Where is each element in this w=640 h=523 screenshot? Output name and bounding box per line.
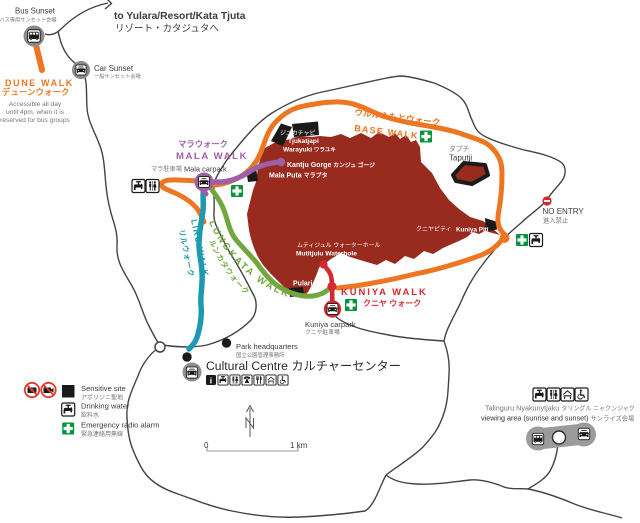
svg-text:Emergency radio alarm: Emergency radio alarm bbox=[81, 421, 160, 430]
svg-text:Warayuki ワラユキ: Warayuki ワラユキ bbox=[283, 147, 336, 154]
svg-text:Sensitive site: Sensitive site bbox=[81, 384, 126, 393]
svg-text:飲料水: 飲料水 bbox=[81, 411, 99, 419]
svg-text:デューンウォーク: デューンウォーク bbox=[2, 87, 70, 97]
svg-text:ムティジュル ウォーターホール: ムティジュル ウォーターホール bbox=[297, 241, 380, 249]
svg-text:Mutitjulu Waterhole: Mutitjulu Waterhole bbox=[296, 251, 357, 258]
svg-text:Kantju Gorge カンジュ ゴージ: Kantju Gorge カンジュ ゴージ bbox=[287, 161, 375, 169]
svg-text:Mala Puta マラプタ: Mala Puta マラプタ bbox=[269, 172, 328, 180]
svg-text:i: i bbox=[210, 375, 212, 385]
svg-text:Kuniya Piti: Kuniya Piti bbox=[456, 227, 489, 234]
svg-text:クニヤピティ: クニヤピティ bbox=[416, 226, 452, 233]
svg-text:viewing area (sunrise and suns: viewing area (sunrise and sunset) サンライズ会… bbox=[481, 414, 635, 423]
svg-text:ジュカチャピ: ジュカチャピ bbox=[280, 130, 316, 137]
svg-text:リゾート・カタジュタへ: リゾート・カタジュタへ bbox=[115, 24, 219, 35]
svg-text:緊急連絡用無線: 緊急連絡用無線 bbox=[81, 430, 123, 438]
svg-text:Bus Sunset: Bus Sunset bbox=[15, 7, 56, 16]
svg-text:Mala carpark: Mala carpark bbox=[184, 165, 227, 174]
svg-text:0: 0 bbox=[204, 441, 209, 450]
svg-text:クニヤ駐車場: クニヤ駐車場 bbox=[305, 328, 340, 336]
svg-text:マラウォーク: マラウォーク bbox=[178, 139, 228, 149]
svg-text:Park headquarters: Park headquarters bbox=[236, 342, 298, 351]
svg-text:国立公園管理事務所: 国立公園管理事務所 bbox=[236, 351, 285, 359]
svg-text:クニヤ ウォーク: クニヤ ウォーク bbox=[363, 298, 421, 308]
svg-text:Accessible all day: Accessible all day bbox=[9, 101, 62, 108]
svg-text:MALA WALK: MALA WALK bbox=[176, 151, 248, 162]
svg-text:KUNIYA WALK: KUNIYA WALK bbox=[341, 287, 428, 298]
svg-text:Drinking water: Drinking water bbox=[81, 402, 130, 411]
svg-text:Kuniya carpark: Kuniya carpark bbox=[305, 320, 356, 329]
svg-text:Car Sunset: Car Sunset bbox=[94, 64, 134, 73]
svg-text:reserved for bus groups: reserved for bus groups bbox=[0, 117, 70, 124]
svg-text:until 4pm, when it is: until 4pm, when it is bbox=[6, 109, 65, 116]
svg-text:バス専用サンセット会場: バス専用サンセット会場 bbox=[0, 16, 57, 24]
svg-text:タプチ: タプチ bbox=[449, 144, 470, 153]
svg-text:Cultural Centre カルチャーセンター: Cultural Centre カルチャーセンター bbox=[206, 359, 401, 373]
svg-text:Taputji: Taputji bbox=[449, 154, 472, 163]
svg-text:一般サンセット会場: 一般サンセット会場 bbox=[94, 72, 141, 80]
svg-text:NO ENTRY: NO ENTRY bbox=[543, 207, 585, 216]
svg-text:1 km: 1 km bbox=[290, 441, 308, 450]
svg-text:Pulari: Pulari bbox=[293, 281, 313, 288]
svg-text:進入禁止: 進入禁止 bbox=[543, 216, 568, 225]
svg-text:Tjukatjapi: Tjukatjapi bbox=[288, 138, 319, 145]
svg-text:マラ駐車場: マラ駐車場 bbox=[151, 165, 182, 173]
svg-text:アボリジニ聖地: アボリジニ聖地 bbox=[81, 394, 123, 402]
svg-text:to Yulara/Resort/Kata Tjuta: to Yulara/Resort/Kata Tjuta bbox=[114, 11, 246, 22]
